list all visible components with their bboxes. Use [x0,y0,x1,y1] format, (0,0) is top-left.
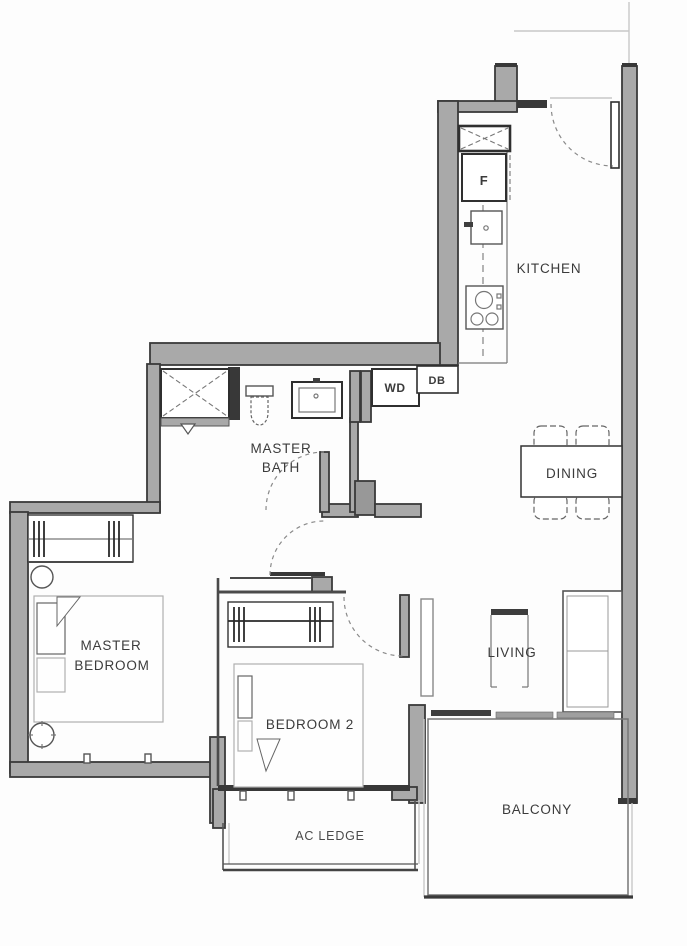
entry-left-cap [495,63,517,67]
wall-sliding-panel-a [350,371,360,422]
entry-door-arc [551,104,613,166]
sliding-door-panel [557,712,614,718]
pillow [238,721,252,751]
wall-hall-right [375,504,421,517]
hall-door-arc [270,521,324,575]
wall-masterbed-top [10,502,160,513]
window-mullion [145,754,151,763]
faucet-icon [464,222,473,227]
bedroom2-door-arc [344,597,403,656]
kitchen-hob [466,286,503,329]
stool [31,566,53,588]
wardrobe [228,602,333,647]
bedroom2-label: BEDROOM 2 [266,717,354,732]
pillow [37,658,65,692]
kitchen-sink [464,211,502,244]
entry-lintel [517,100,547,108]
db-label: DB [429,375,446,387]
window-mullion [288,791,294,800]
wall-bath-left [147,364,160,512]
window-mullion [348,791,354,800]
wall-masterbed-left [10,512,28,773]
entry-door [551,102,619,168]
living-label: LIVING [487,645,536,660]
bedroom2-furniture [228,595,409,800]
pillow [238,676,252,718]
wall-hall-post [355,481,375,515]
sofa [563,591,622,712]
washer-dryer-label: WD [385,381,406,395]
shower-drain-icon [181,424,195,434]
wall-sliding-panel-b [361,371,371,422]
wall-masterbed-bottom [10,762,218,777]
hall-door-leaf [270,572,325,576]
wall-right-outer [622,66,637,803]
entry-door-leaf [611,102,619,168]
master-bedroom-label-line1: MASTER [80,638,141,653]
kitchen-label: KITCHEN [517,261,582,276]
side-table [28,721,56,749]
wall-acledge-left [213,789,225,828]
hall-door [270,521,325,576]
balcony-label: BALCONY [502,802,572,817]
toilet [246,386,273,425]
fridge-label: F [480,173,488,188]
window-mullion [84,754,90,763]
window-mullion [240,791,246,800]
vanity-sink [292,378,342,418]
exterior-faint-lines [514,2,629,64]
master-bath-label-line1: MASTER [250,441,311,456]
wall-hall-door-post [312,577,332,592]
kitchen-fixtures: F [459,126,510,329]
master-bath-label-line2: BATH [262,460,300,475]
shower [161,369,229,434]
master-bedroom-label-line2: BEDROOM [74,658,149,673]
dining-label: DINING [546,466,598,481]
wall-kitchen-left [438,101,458,365]
sliding-door-panel [431,710,491,716]
bath-door-leaf [320,452,329,512]
ac-ledge-label: AC LEDGE [295,829,365,843]
right-wall-top-cap [622,63,637,67]
faucet-icon [313,378,320,383]
bedroom2-door-leaf [400,595,409,657]
cabinet [421,599,433,696]
sliding-door-panel [496,712,553,718]
floor-plan-drawing: F [0,0,687,946]
wall-bath-top [150,343,440,365]
wardrobe [28,515,133,562]
floor-plan: F [0,0,687,946]
